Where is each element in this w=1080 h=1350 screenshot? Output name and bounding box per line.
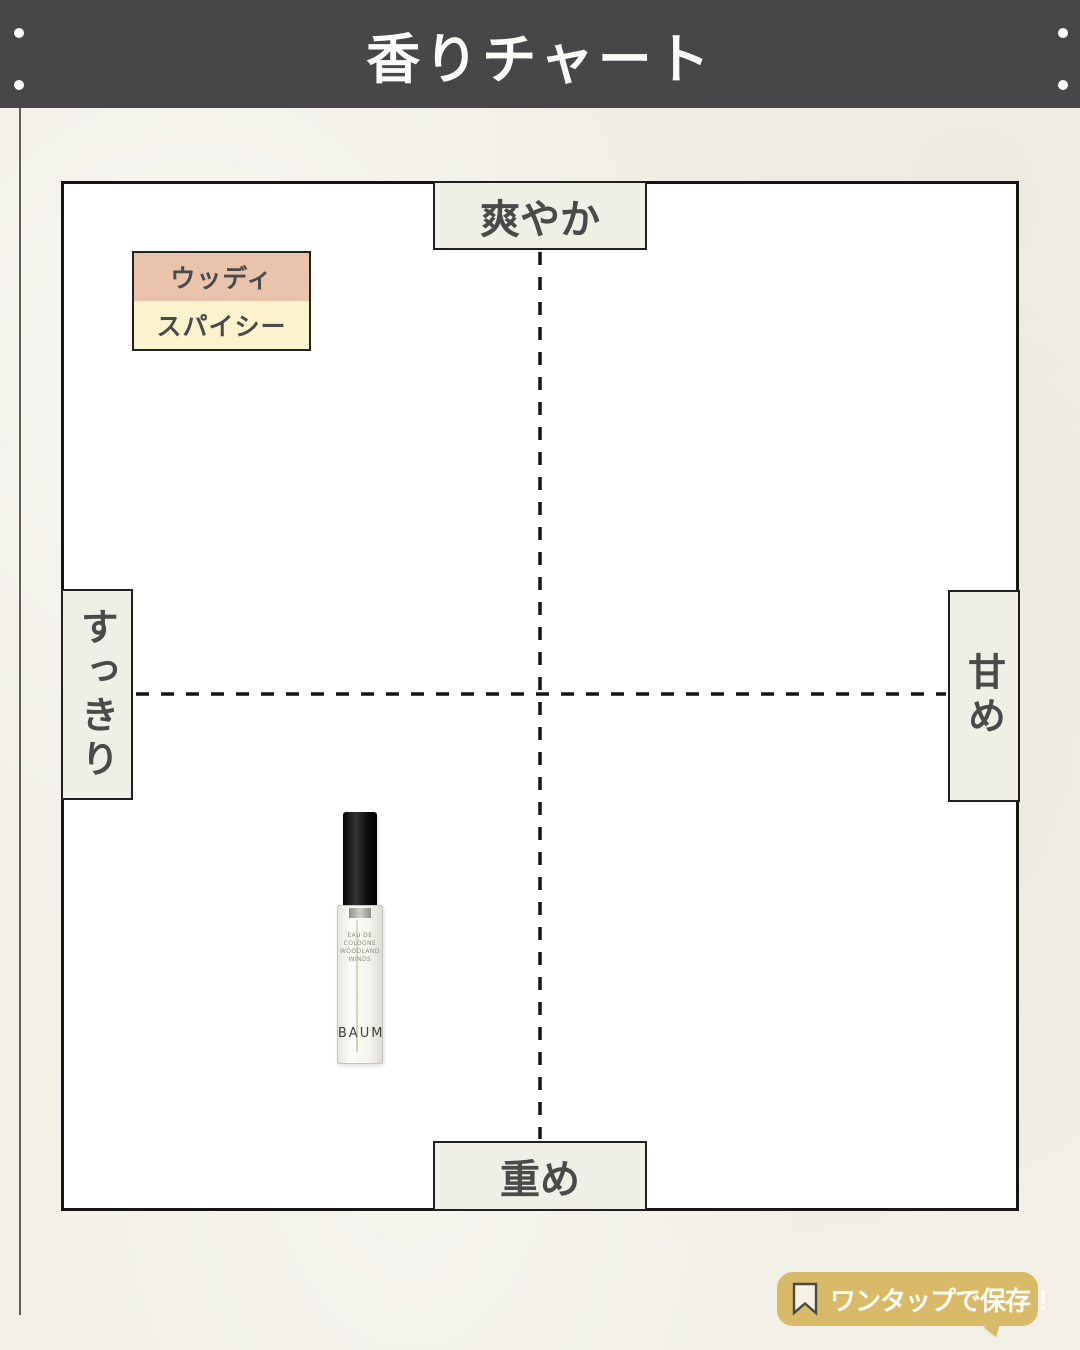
bottle-label: EAU DE COLOGNE WOODLAND WINDS <box>338 932 382 964</box>
legend: ウッディ スパイシー <box>132 251 311 351</box>
corner-dot <box>14 80 24 90</box>
legend-item-woody: ウッディ <box>134 253 309 301</box>
legend-label: スパイシー <box>156 307 286 343</box>
corner-dot <box>14 28 24 38</box>
axis-label-text: 重め <box>500 1147 580 1205</box>
axis-label-sweet: 甘め <box>948 590 1020 802</box>
bottle-body: EAU DE COLOGNE WOODLAND WINDS BAUM <box>337 905 383 1064</box>
axis-label-text: 爽やか <box>480 187 600 245</box>
header: 香りチャート <box>0 0 1080 108</box>
badge-tail <box>983 1322 1004 1341</box>
axis-label-fresh: 爽やか <box>433 181 647 250</box>
bookmark-icon <box>790 1282 820 1316</box>
margin-line <box>19 108 21 1315</box>
save-badge[interactable]: ワンタップで保存！ <box>777 1272 1038 1326</box>
legend-label: ウッディ <box>170 259 272 295</box>
axis-label-text: すっきり <box>70 607 125 783</box>
bottle-brand: BAUM <box>338 1026 382 1041</box>
bottle-collar <box>349 908 371 918</box>
bottle-label-line: WOODLAND <box>338 948 382 956</box>
axis-label-heavy: 重め <box>433 1141 647 1211</box>
bottle-label-line: COLOGNE <box>338 940 382 948</box>
axis-label-text: 甘め <box>957 652 1012 740</box>
product-point: EAU DE COLOGNE WOODLAND WINDS BAUM <box>336 812 384 1064</box>
corner-dot <box>1058 28 1068 38</box>
save-badge-label: ワンタップで保存！ <box>830 1281 1055 1318</box>
bottle-label-line: EAU DE <box>338 932 382 940</box>
page: 香りチャート 爽やか 重め すっきり 甘め ウッディ スパイシー EAU DE … <box>0 0 1080 1350</box>
bottle-cap <box>343 812 377 906</box>
corner-dot <box>1058 80 1068 90</box>
legend-item-spicy: スパイシー <box>134 301 309 349</box>
bottle-label-line: WINDS <box>338 956 382 964</box>
axis-label-clean: すっきり <box>61 589 133 800</box>
page-title: 香りチャート <box>366 15 713 94</box>
